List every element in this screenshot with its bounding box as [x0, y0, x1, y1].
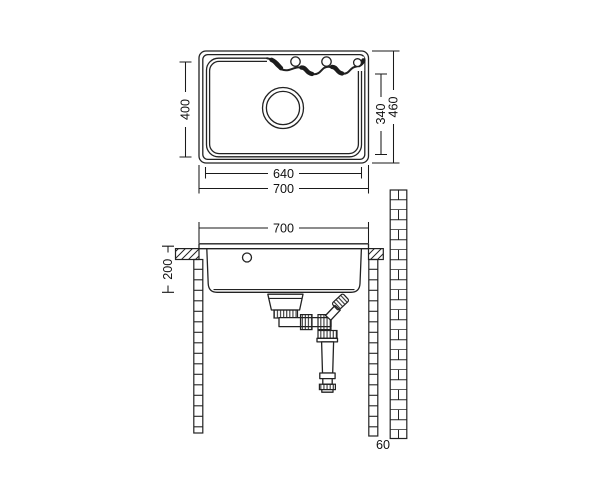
dim-bowl-depth-400: 400 — [179, 62, 193, 157]
trap-bottom-nut — [319, 384, 335, 389]
trap-neck — [323, 379, 332, 385]
dim-label-700-front: 700 — [273, 222, 294, 236]
dim-bowl-width-640: 640 — [206, 167, 362, 181]
faucet-hole-3 — [354, 59, 362, 67]
drain-trap-assembly — [268, 293, 349, 392]
pipe-union-nut — [301, 315, 313, 330]
drawing-page: 400 340 460 640 700 — [0, 0, 600, 500]
bowl-section — [207, 249, 362, 293]
dim-label-200: 200 — [161, 259, 175, 280]
brick-wall — [390, 190, 407, 439]
trap-body — [322, 342, 334, 373]
trap-collar — [320, 373, 335, 379]
faucet-hole-2 — [322, 57, 331, 66]
overflow-hole — [243, 253, 252, 262]
dim-label-60: 60 — [376, 438, 390, 452]
dim-overall-width-700-front: 700 — [199, 222, 369, 244]
countertop-right — [369, 249, 384, 260]
right-leg — [369, 260, 378, 437]
dim-label-700-top: 700 — [273, 182, 294, 196]
sink-rim-section — [199, 244, 369, 249]
dim-label-460: 460 — [387, 96, 401, 117]
sink-technical-drawing: 400 340 460 640 700 — [0, 0, 600, 500]
strainer-cup — [268, 294, 303, 310]
front-view: 700 200 60 — [161, 190, 407, 452]
dim-bowl-height-200: 200 — [161, 246, 175, 292]
dim-label-400: 400 — [179, 99, 193, 120]
dim-label-640: 640 — [273, 167, 294, 181]
strainer-locknut — [274, 310, 298, 318]
trap-outlet — [322, 390, 333, 393]
trap-top-nut — [318, 331, 337, 339]
countertop-left — [176, 249, 200, 260]
left-leg — [194, 260, 203, 434]
top-view: 400 340 460 640 700 — [179, 51, 401, 196]
faucet-hole-1 — [291, 57, 300, 66]
